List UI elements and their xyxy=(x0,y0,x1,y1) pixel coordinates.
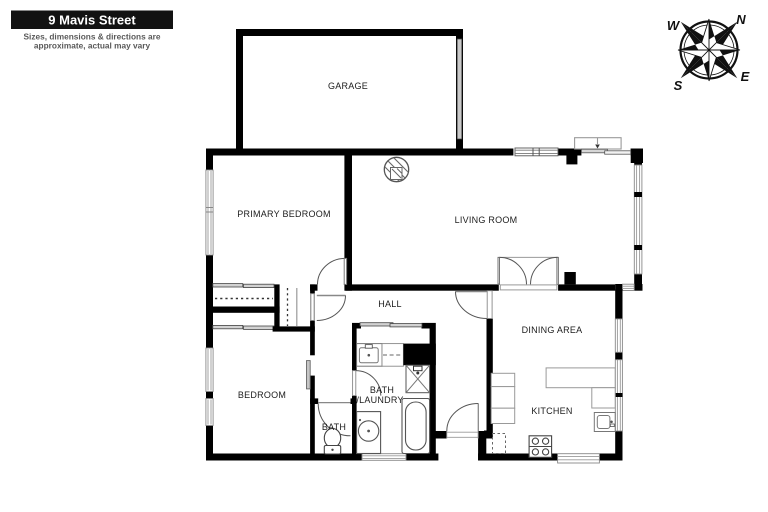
svg-text:PRIMARY BEDROOM: PRIMARY BEDROOM xyxy=(237,209,330,219)
svg-text:N: N xyxy=(736,12,746,27)
svg-text:GARAGE: GARAGE xyxy=(328,81,368,91)
svg-text:W: W xyxy=(667,18,681,33)
svg-text:E: E xyxy=(741,69,750,84)
svg-text:BEDROOM: BEDROOM xyxy=(238,390,286,400)
svg-text:/LAUNDRY: /LAUNDRY xyxy=(356,395,403,405)
svg-text:DINING AREA: DINING AREA xyxy=(522,325,583,335)
svg-text:BATH: BATH xyxy=(370,385,394,395)
svg-text:9 Mavis Street: 9 Mavis Street xyxy=(48,13,136,28)
svg-text:HALL: HALL xyxy=(378,299,402,309)
svg-text:approximate, actual may vary: approximate, actual may vary xyxy=(34,41,151,51)
svg-text:BATH: BATH xyxy=(322,422,346,432)
svg-text:KITCHEN: KITCHEN xyxy=(531,406,572,416)
svg-text:LIVING ROOM: LIVING ROOM xyxy=(455,215,518,225)
svg-text:S: S xyxy=(674,78,683,93)
